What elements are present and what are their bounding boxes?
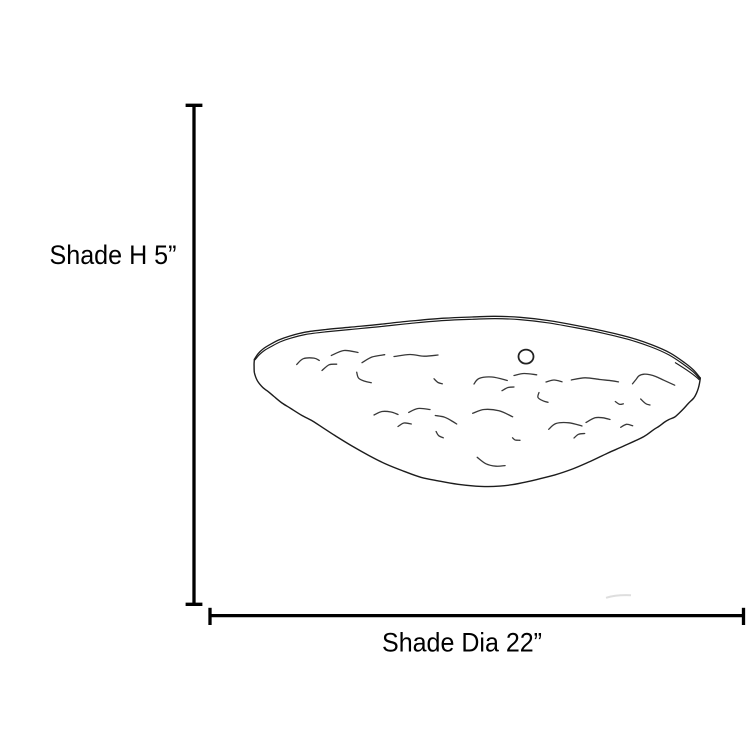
svg-text:Shade H 5”: Shade H 5” (50, 240, 177, 270)
svg-text:Shade Dia 22”: Shade Dia 22” (382, 628, 542, 658)
